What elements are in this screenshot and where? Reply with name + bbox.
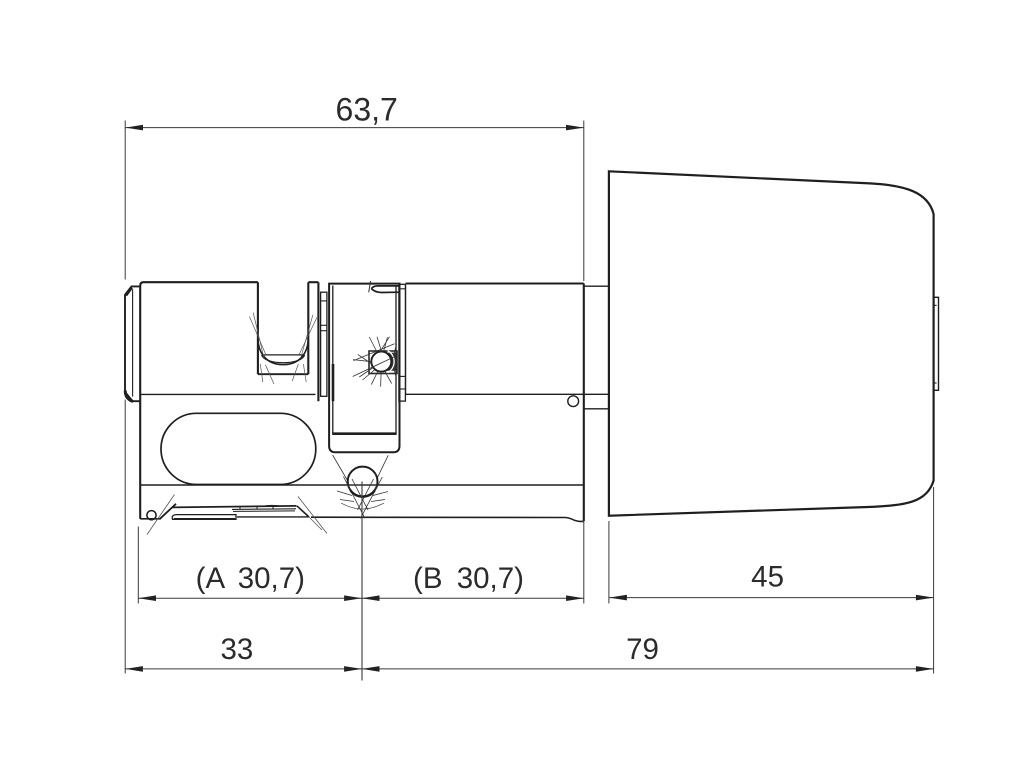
- svg-text:(A 30,7): (A 30,7): [196, 562, 305, 595]
- svg-text:63,7: 63,7: [336, 92, 398, 128]
- svg-text:33: 33: [220, 633, 253, 666]
- svg-text:45: 45: [751, 560, 784, 593]
- svg-text:(B 30,7): (B 30,7): [413, 562, 524, 595]
- svg-text:79: 79: [626, 633, 659, 666]
